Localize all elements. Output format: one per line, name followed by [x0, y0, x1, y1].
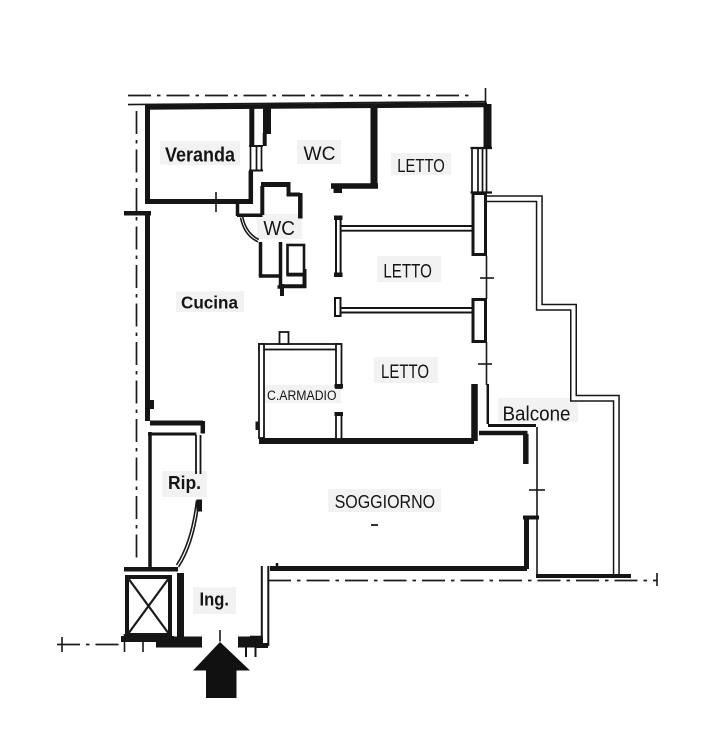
svg-text:C.ARMADIO: C.ARMADIO [267, 388, 337, 403]
svg-text:SOGGIORNO: SOGGIORNO [335, 491, 436, 512]
svg-text:Rip.: Rip. [168, 473, 201, 493]
svg-text:Cucina: Cucina [181, 293, 238, 313]
svg-text:WC: WC [263, 218, 295, 240]
svg-text:Ing.: Ing. [200, 590, 230, 610]
svg-text:LETTO: LETTO [397, 155, 445, 176]
svg-text:Veranda: Veranda [165, 143, 236, 166]
svg-text:LETTO: LETTO [383, 261, 432, 282]
svg-text:LETTO: LETTO [381, 362, 429, 383]
svg-text:Balcone: Balcone [503, 403, 571, 425]
svg-text:WC: WC [304, 143, 336, 165]
